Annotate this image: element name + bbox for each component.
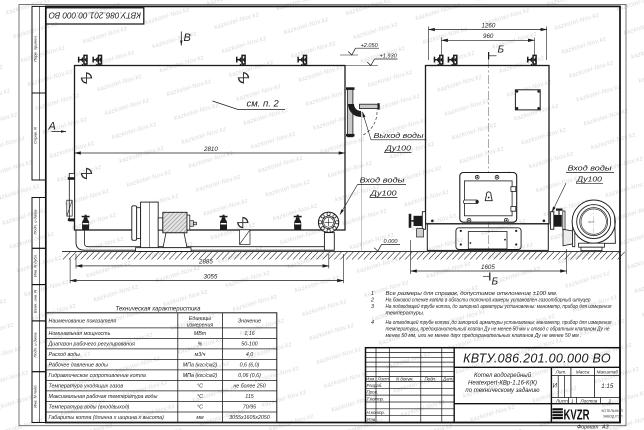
svg-text:3055х1605х2050: 3055х1605х2050 bbox=[229, 415, 270, 421]
svg-text:0.000: 0.000 bbox=[384, 239, 399, 245]
svg-text:Разраб.: Разраб. bbox=[367, 383, 383, 388]
svg-text:Значение: Значение bbox=[238, 319, 261, 325]
svg-text:Б: Б bbox=[498, 45, 505, 56]
svg-text:Формат: Формат bbox=[577, 425, 599, 430]
svg-text:Лит.: Лит. bbox=[555, 370, 567, 375]
svg-text:не более 250: не более 250 bbox=[233, 384, 265, 390]
svg-text:0,6 (6,0): 0,6 (6,0) bbox=[240, 363, 260, 369]
svg-text:Рабочее давление воды: Рабочее давление воды bbox=[49, 363, 108, 369]
svg-text:1: 1 bbox=[371, 291, 374, 297]
svg-text:2810: 2810 bbox=[203, 146, 218, 153]
svg-text:Инв. N дубл.: Инв. N дубл. bbox=[33, 254, 38, 277]
svg-text:3: 3 bbox=[371, 304, 374, 310]
svg-text:Диапазон рабочего регулировани: Диапазон рабочего регулирования bbox=[48, 342, 136, 348]
svg-text:измерения: измерения bbox=[187, 322, 214, 328]
svg-text:Ду100: Ду100 bbox=[384, 146, 411, 153]
svg-text:Пров.: Пров. bbox=[367, 390, 379, 395]
svg-text:МПа (кгс/см2): МПа (кгс/см2) bbox=[183, 373, 218, 379]
svg-text:Вход воды: Вход воды bbox=[360, 177, 406, 185]
svg-text:2: 2 bbox=[370, 297, 374, 303]
svg-text:Единицы: Единицы bbox=[189, 316, 211, 322]
svg-text:0,06 (0,6): 0,06 (0,6) bbox=[238, 373, 261, 379]
svg-text:На боковой стенке котла в обла: На боковой стенке котла в области топочн… bbox=[386, 296, 591, 303]
svg-text:Вход воды: Вход воды bbox=[568, 164, 613, 172]
svg-text:°С: °С bbox=[197, 384, 203, 390]
svg-text:температуры.: температуры. bbox=[386, 311, 425, 317]
svg-text:И: И bbox=[553, 384, 558, 390]
svg-text:Наименование показателя: Наименование показателя bbox=[49, 319, 117, 325]
svg-text:В: В bbox=[184, 32, 191, 44]
svg-text:Гидравлическое сопротивление к: Гидравлическое сопротивление котла bbox=[49, 373, 146, 379]
svg-text:1605: 1605 bbox=[481, 264, 495, 271]
svg-text:N докум.: N докум. bbox=[396, 377, 414, 382]
svg-text:Перв. примен.: Перв. примен. bbox=[33, 35, 38, 62]
svg-text:м3/ч: м3/ч bbox=[195, 352, 206, 358]
svg-text:1,16: 1,16 bbox=[244, 331, 254, 337]
svg-text:Ду100: Ду100 bbox=[576, 176, 602, 183]
svg-text:Н.контр.: Н.контр. bbox=[367, 410, 386, 415]
svg-text:960: 960 bbox=[483, 33, 494, 40]
svg-text:Лист: Лист bbox=[377, 377, 390, 382]
svg-text:по техническому заданию: по техническому заданию bbox=[465, 388, 540, 394]
svg-text:Котел водогрейный: Котел водогрейный bbox=[474, 372, 532, 379]
svg-text:KVZR: KVZR bbox=[564, 407, 590, 423]
svg-text:Справ. N: Справ. N bbox=[33, 127, 38, 144]
svg-text:°С: °С bbox=[197, 405, 203, 411]
svg-text:Лист: Лист bbox=[555, 398, 568, 403]
svg-text:Номинальная мощность: Номинальная мощность bbox=[49, 331, 111, 337]
svg-text:КВТУ.086.201.00.000 ВО: КВТУ.086.201.00.000 ВО bbox=[48, 11, 141, 20]
svg-text:Изм.: Изм. bbox=[366, 377, 375, 382]
svg-text:Габариты котла (длинна х ширин: Габариты котла (длинна х ширина х высота… bbox=[49, 415, 165, 421]
svg-text:Выход воды: Выход воды bbox=[374, 132, 425, 140]
svg-text:1: 1 bbox=[571, 398, 574, 403]
svg-text:%: % bbox=[198, 342, 203, 348]
svg-text:мм: мм bbox=[196, 415, 204, 421]
svg-text:70/95: 70/95 bbox=[243, 405, 256, 411]
svg-text:Масса: Масса bbox=[576, 370, 590, 375]
svg-text:Листов: Листов bbox=[580, 398, 598, 403]
svg-text:Инв. N подл.: Инв. N подл. bbox=[33, 384, 38, 407]
svg-text:см. п. 2: см. п. 2 bbox=[247, 99, 280, 110]
svg-text:Все размеры для справок, допус: Все размеры для справок, допустимое откл… bbox=[386, 291, 558, 297]
svg-text:Подп. и дата: Подп. и дата bbox=[33, 209, 38, 235]
svg-text:Техническая характеристика: Техническая характеристика bbox=[116, 306, 202, 312]
svg-text:Взам. инв. N: Взам. инв. N bbox=[33, 290, 38, 313]
svg-text:Б: Б bbox=[492, 277, 499, 288]
svg-text:А: А bbox=[48, 121, 56, 133]
svg-text:Утв.: Утв. bbox=[367, 417, 377, 422]
svg-text:Дата: Дата bbox=[442, 377, 455, 382]
svg-text:КОТЕЛЬНЫЙ: КОТЕЛЬНЫЙ bbox=[602, 409, 624, 413]
svg-text:Подп.: Подп. bbox=[425, 377, 437, 382]
svg-text:КВТУ.086.201.00.000 ВО: КВТУ.086.201.00.000 ВО bbox=[463, 352, 611, 366]
svg-text:Heatexpert-КВр-1,16-К(К): Heatexpert-КВр-1,16-К(К) bbox=[468, 380, 537, 386]
svg-text:2: 2 bbox=[608, 398, 612, 403]
svg-text:ЗАВОД РЭП: ЗАВОД РЭП bbox=[603, 415, 623, 419]
svg-text:1260: 1260 bbox=[482, 23, 496, 30]
svg-text:температуры, предохранительный: температуры, предохранительный клапан Ду… bbox=[386, 326, 610, 333]
svg-text:менее 50 мм, или не менее дву: менее 50 мм, или не менее двух предохран… bbox=[386, 333, 582, 339]
svg-text:115: 115 bbox=[245, 394, 253, 400]
svg-text:Температура уходящих газов: Температура уходящих газов bbox=[49, 384, 124, 390]
svg-text:Расход воды: Расход воды bbox=[49, 352, 80, 358]
svg-text:4: 4 bbox=[371, 320, 374, 326]
svg-text:Ду100: Ду100 bbox=[369, 190, 396, 197]
svg-text:На отводящей трубе котла ,до з: На отводящей трубе котла ,до запорной ар… bbox=[386, 319, 612, 326]
svg-text:МВт: МВт bbox=[194, 331, 207, 337]
svg-text:А3: А3 bbox=[601, 425, 609, 430]
svg-text:1:15: 1:15 bbox=[601, 383, 614, 390]
svg-text:50-100: 50-100 bbox=[241, 342, 258, 348]
svg-text:°С: °С bbox=[197, 394, 203, 400]
svg-text:Масштаб: Масштаб bbox=[597, 370, 619, 375]
svg-text:Т.контр.: Т.контр. bbox=[367, 397, 385, 402]
svg-text:Максимальная рабочая температу: Максимальная рабочая температура воды bbox=[49, 394, 158, 400]
svg-text:4,0: 4,0 bbox=[246, 352, 253, 358]
svg-text:2885: 2885 bbox=[198, 259, 213, 266]
svg-text:Подп. и дата: Подп. и дата bbox=[33, 332, 38, 358]
svg-text:МПа (кгс/см2): МПа (кгс/см2) bbox=[183, 363, 218, 369]
svg-text:Температура воды (вход/выход): Температура воды (вход/выход) bbox=[49, 405, 130, 411]
svg-text:На подводящей трубе котла, до: На подводящей трубе котла, до запорной а… bbox=[386, 303, 612, 310]
svg-text:3055: 3055 bbox=[204, 273, 218, 280]
